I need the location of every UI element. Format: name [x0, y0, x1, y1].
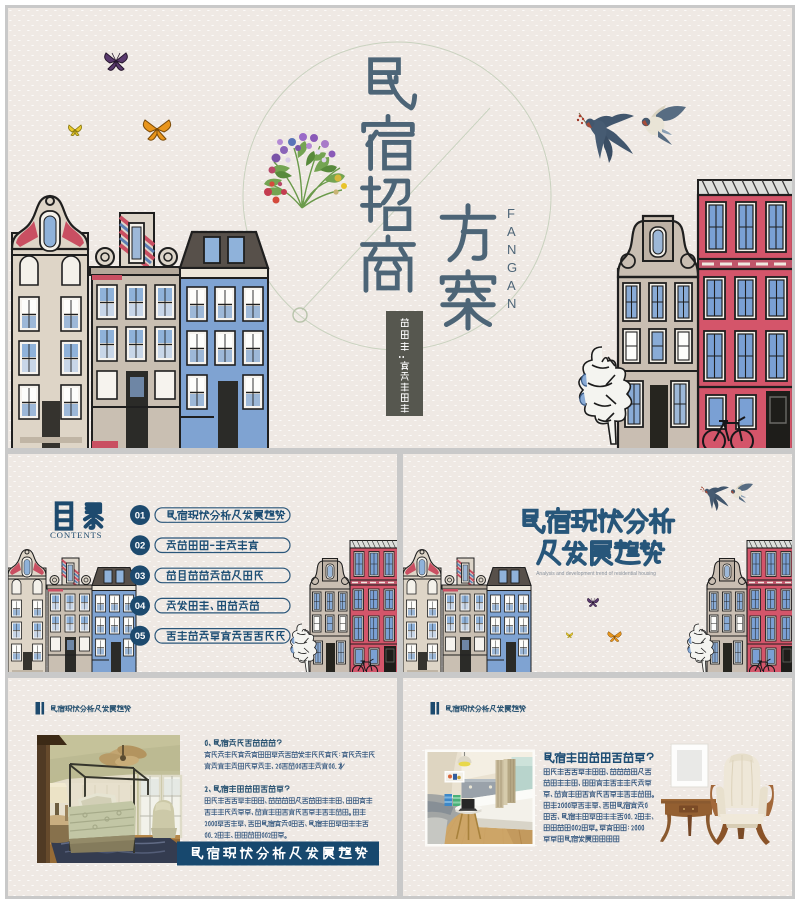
svg-text:02: 02	[135, 541, 146, 552]
svg-text:01: 01	[135, 510, 146, 521]
svg-text:N: N	[507, 242, 516, 257]
svg-text:A: A	[507, 224, 516, 239]
svg-text:G: G	[507, 260, 517, 275]
svg-text:CONTENTS: CONTENTS	[50, 530, 102, 540]
svg-text:F: F	[507, 206, 515, 221]
svg-text:Analysis and development trend: Analysis and development trend of reside…	[536, 571, 656, 577]
svg-text:04: 04	[135, 601, 146, 612]
svg-text:N: N	[507, 296, 516, 311]
svg-text:05: 05	[135, 631, 146, 642]
svg-text:A: A	[507, 278, 516, 293]
svg-text:03: 03	[135, 571, 146, 582]
